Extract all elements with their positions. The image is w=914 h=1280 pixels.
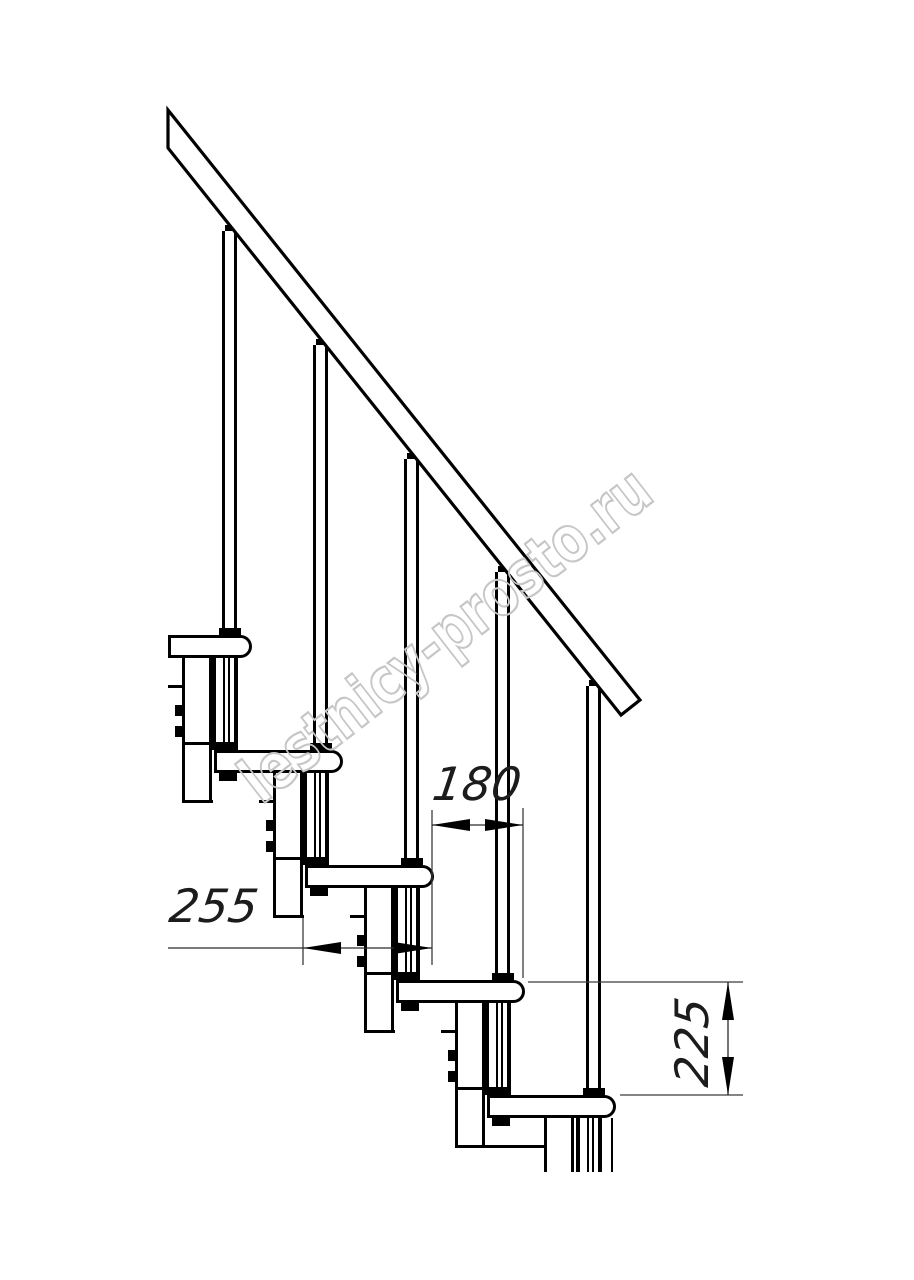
dim-arrow-up bbox=[722, 982, 734, 1020]
dim-label-run: 180 bbox=[424, 760, 531, 808]
dim-arrow-down bbox=[722, 1057, 734, 1095]
staircase-drawing-canvas: lestnicy-prosto.ru 180 255 225 bbox=[0, 0, 914, 1280]
dim-arrow-left bbox=[303, 942, 341, 954]
dim-arrow-right bbox=[485, 819, 523, 831]
dimension-lines bbox=[168, 825, 728, 1095]
drawing-overlay: lestnicy-prosto.ru bbox=[0, 0, 914, 1280]
dim-label-tread-depth: 255 bbox=[167, 882, 284, 930]
dim-arrow-right bbox=[394, 942, 432, 954]
dim-label-rise: 225 bbox=[668, 983, 718, 1100]
dim-arrow-left bbox=[432, 819, 470, 831]
